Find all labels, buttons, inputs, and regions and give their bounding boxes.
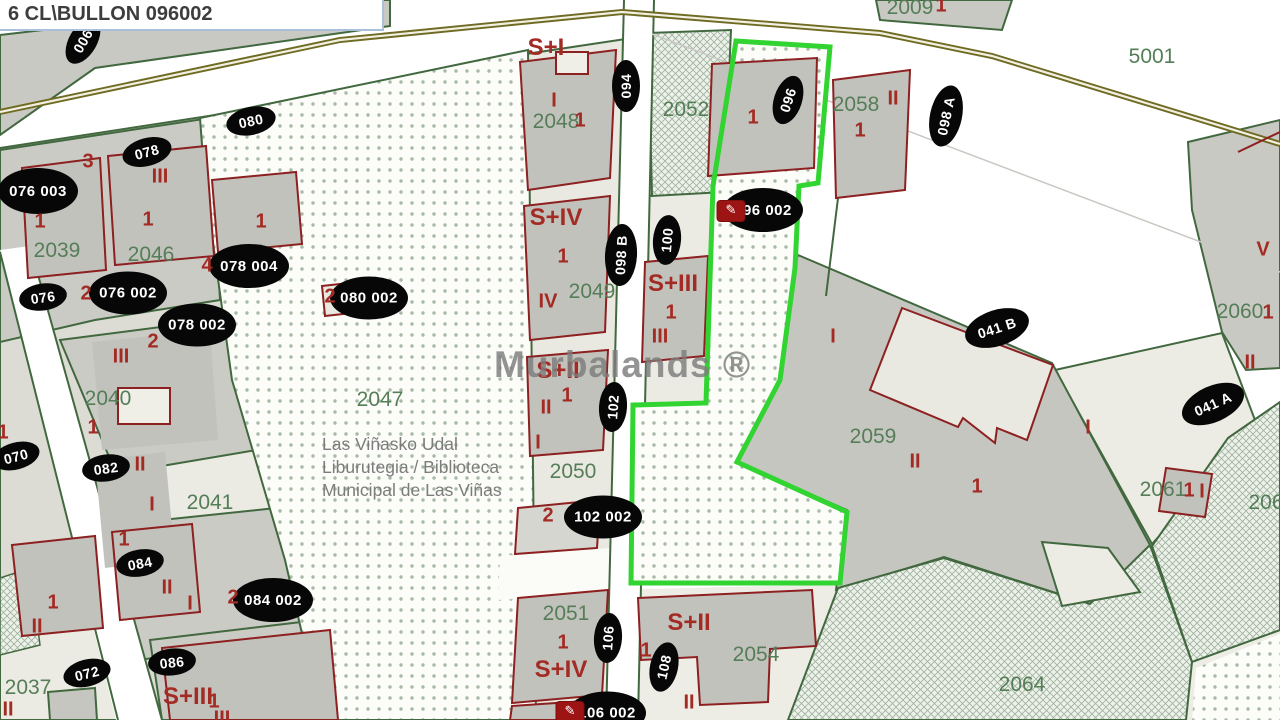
parcel-number-label: 2050: [550, 460, 597, 484]
building-height-label: III: [214, 708, 231, 720]
parcel-code-oval[interactable]: 076 003: [0, 168, 78, 214]
parcel-code-oval[interactable]: 106: [592, 612, 623, 664]
parcel-code-oval[interactable]: 080 002: [330, 277, 408, 320]
building-height-label: 2: [542, 505, 553, 528]
building-height-label: 2: [80, 283, 91, 306]
building-height-label: II: [909, 451, 920, 474]
selected-parcel-header: 6 CL\BULLON 096002: [0, 0, 384, 31]
building-height-label: S+IV: [535, 656, 588, 684]
library-poi-label: Las Viñasko Udal Liburutegia / Bibliotec…: [322, 433, 502, 502]
building-height-label: 1: [665, 302, 676, 325]
parcel-code-oval[interactable]: 102: [597, 381, 628, 433]
library-poi-line: Municipal de Las Viñas: [322, 479, 502, 502]
building-height-label: S+III: [648, 270, 698, 298]
building-height-label: I: [1199, 481, 1205, 504]
parcel-code-oval[interactable]: 041 B: [960, 301, 1034, 356]
building-height-label: II: [540, 397, 551, 420]
building-height-label: S+I: [528, 34, 565, 62]
parcel-number-label: 2051: [543, 602, 590, 626]
building-height-label: 1: [854, 120, 865, 143]
edit-icon[interactable]: ✎: [556, 701, 585, 720]
building-height-label: 1: [935, 0, 946, 18]
building-height-label: II: [887, 88, 898, 111]
parcel-number-label: 2058: [833, 93, 880, 117]
building-height-label: 2: [324, 286, 335, 309]
parcel-number-label: 2040: [85, 387, 132, 411]
parcel-number-label: 206: [1248, 491, 1280, 515]
parcel-code-oval[interactable]: 102 002: [564, 496, 642, 539]
building-height-label: 2: [227, 587, 238, 610]
parcel-number-label: 2064: [999, 673, 1046, 697]
building-height-label: II: [161, 577, 172, 600]
building-height-label: 4: [201, 255, 212, 278]
building-height-label: I: [187, 593, 193, 616]
parcel-code-oval[interactable]: 078 002: [158, 304, 236, 347]
building-height-label: 1: [1183, 480, 1194, 503]
building-height-label: I: [551, 90, 557, 113]
building-height-label: I: [830, 326, 836, 349]
parcel-code-oval[interactable]: 076: [17, 280, 68, 313]
parcel-code-oval[interactable]: 098 A: [924, 82, 968, 149]
building-height-label: I: [535, 432, 541, 455]
parcel-number-label: 2048: [533, 110, 580, 134]
parcel-code-oval[interactable]: 094: [612, 60, 640, 112]
building-height-label: III: [113, 346, 130, 369]
building-height-label: V: [1256, 239, 1269, 262]
parcel-number-label: 5001: [1129, 45, 1176, 69]
parcel-number-label: 2047: [357, 388, 404, 412]
building-height-label: II: [2, 699, 13, 720]
parcel-number-label: 2041: [187, 491, 234, 515]
parcel-number-label: 2061: [1140, 478, 1187, 502]
parcel-number-label: 2039: [34, 239, 81, 263]
building-height-label: 1: [557, 246, 568, 269]
parcel-code-oval[interactable]: 076 002: [89, 272, 167, 315]
parcel-code-oval[interactable]: 080: [224, 102, 279, 140]
parcel-number-label: 2052: [663, 98, 710, 122]
library-poi-line: Las Viñasko Udal: [322, 433, 502, 456]
parcel-code-oval[interactable]: 041 A: [1176, 374, 1251, 434]
building-height-label: II: [1244, 352, 1255, 375]
parcel-number-label: 2046: [128, 243, 175, 267]
building-height-label: II: [31, 616, 42, 639]
parcel-code-oval[interactable]: 082: [80, 451, 131, 484]
building-height-label: S+IV: [530, 204, 583, 232]
parcel-number-label: 2049: [569, 280, 616, 304]
edit-icon[interactable]: ✎: [717, 200, 746, 222]
parcel-code-oval[interactable]: 086: [147, 646, 198, 678]
building-height-label: 1: [640, 640, 651, 663]
watermark: Murbalands ®: [494, 344, 751, 386]
parcel-number-label: 2009: [887, 0, 934, 20]
building-height-label: 1: [118, 529, 129, 552]
map-viewport[interactable]: 006094096098 A076 003078080096 002098 B1…: [0, 0, 1280, 720]
building-height-label: III: [152, 166, 169, 189]
building-height-label: 2: [147, 331, 158, 354]
parcel-code-oval[interactable]: 096: [767, 72, 809, 128]
building-height-label: 1: [47, 592, 58, 615]
building-height-label: 1: [142, 209, 153, 232]
building-height-label: 1: [574, 110, 585, 133]
building-height-label: S+II: [667, 609, 710, 637]
building-height-label: 1: [971, 476, 982, 499]
parcel-number-label: 2060: [1217, 300, 1264, 324]
building-height-label: 1: [561, 385, 572, 408]
parcel-number-label: 2059: [850, 425, 897, 449]
parcel-code-oval[interactable]: 078 004: [209, 244, 289, 288]
building-height-label: 1: [0, 422, 9, 445]
building-height-label: 1: [87, 417, 98, 440]
building-height-label: 1: [255, 211, 266, 234]
building-height-label: II: [683, 692, 694, 715]
building-height-label: I: [149, 494, 155, 517]
building-height-label: 1: [747, 107, 758, 130]
parcel-code-oval[interactable]: 072: [60, 654, 113, 692]
building-height-label: S+III: [163, 683, 213, 711]
building-height-label: IV: [539, 291, 558, 314]
building-height-label: 3: [82, 151, 93, 174]
parcel-code-oval[interactable]: 100: [651, 214, 683, 266]
building-height-label: II: [134, 454, 145, 477]
building-height-label: 1: [34, 211, 45, 234]
parcel-code-oval[interactable]: 084 002: [233, 578, 313, 622]
parcel-number-label: 2037: [5, 676, 52, 700]
building-height-label: I: [1085, 417, 1091, 440]
building-height-label: 1: [557, 632, 568, 655]
parcel-code-oval[interactable]: 098 B: [603, 223, 638, 287]
building-height-label: 1: [1262, 302, 1273, 325]
library-poi-line: Liburutegia / Biblioteca: [322, 456, 502, 479]
parcel-number-label: 2054: [733, 643, 780, 667]
